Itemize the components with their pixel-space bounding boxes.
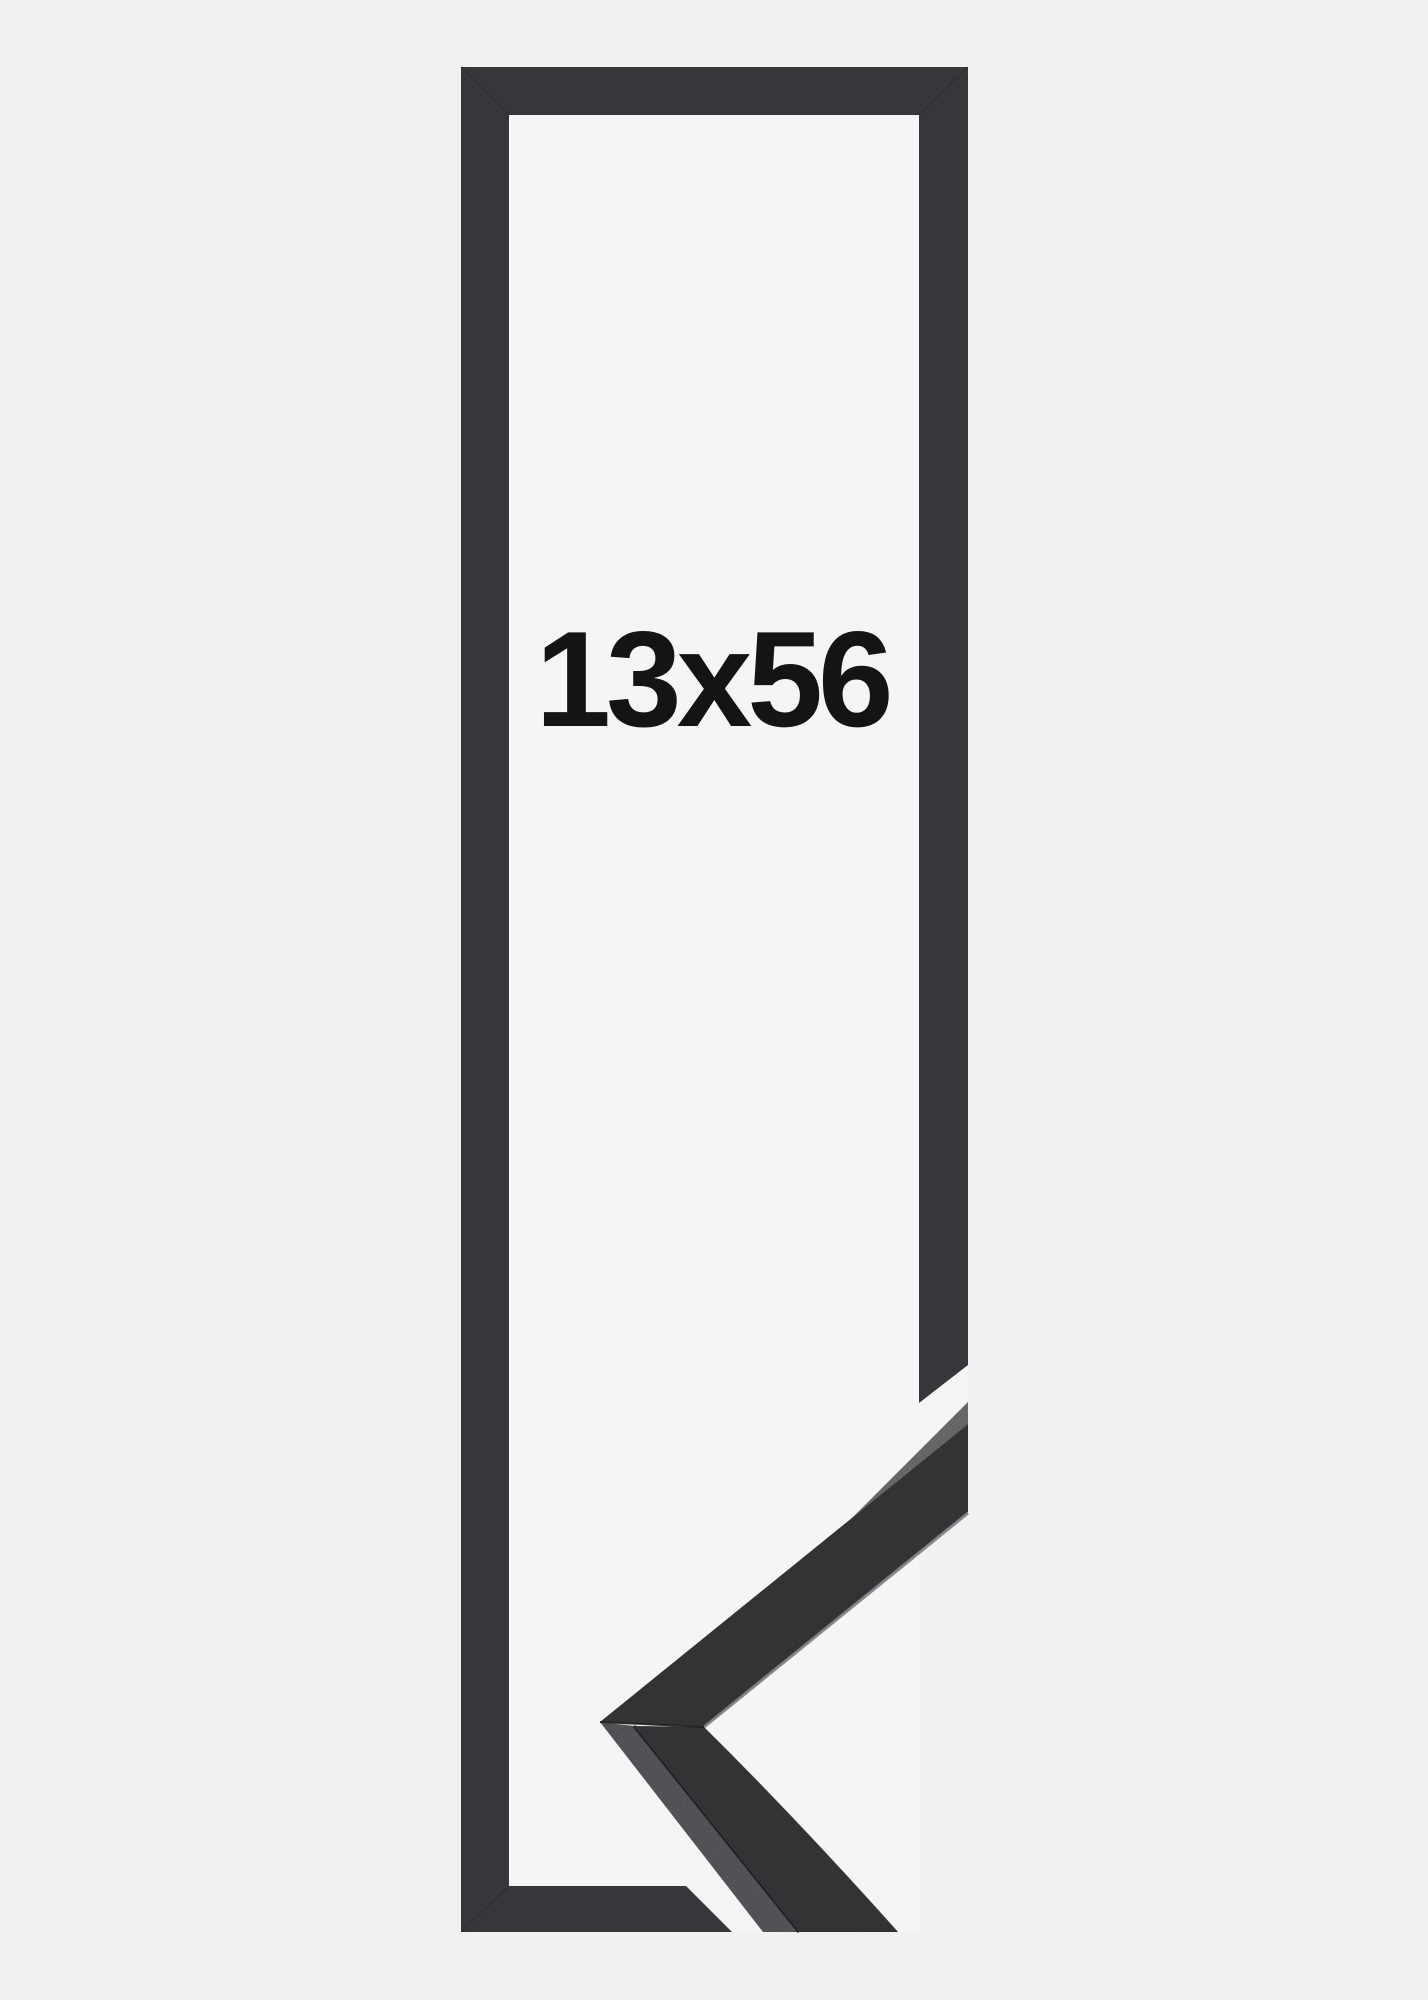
size-label: 13x56: [535, 603, 889, 755]
frame-size-diagram: 13x56: [0, 0, 1428, 2000]
frame-right-bar: [919, 67, 968, 1403]
frame-product-image: 13x56: [0, 0, 1428, 2000]
frame-top-bar: [461, 67, 968, 115]
frame-left-bar: [461, 67, 509, 1932]
